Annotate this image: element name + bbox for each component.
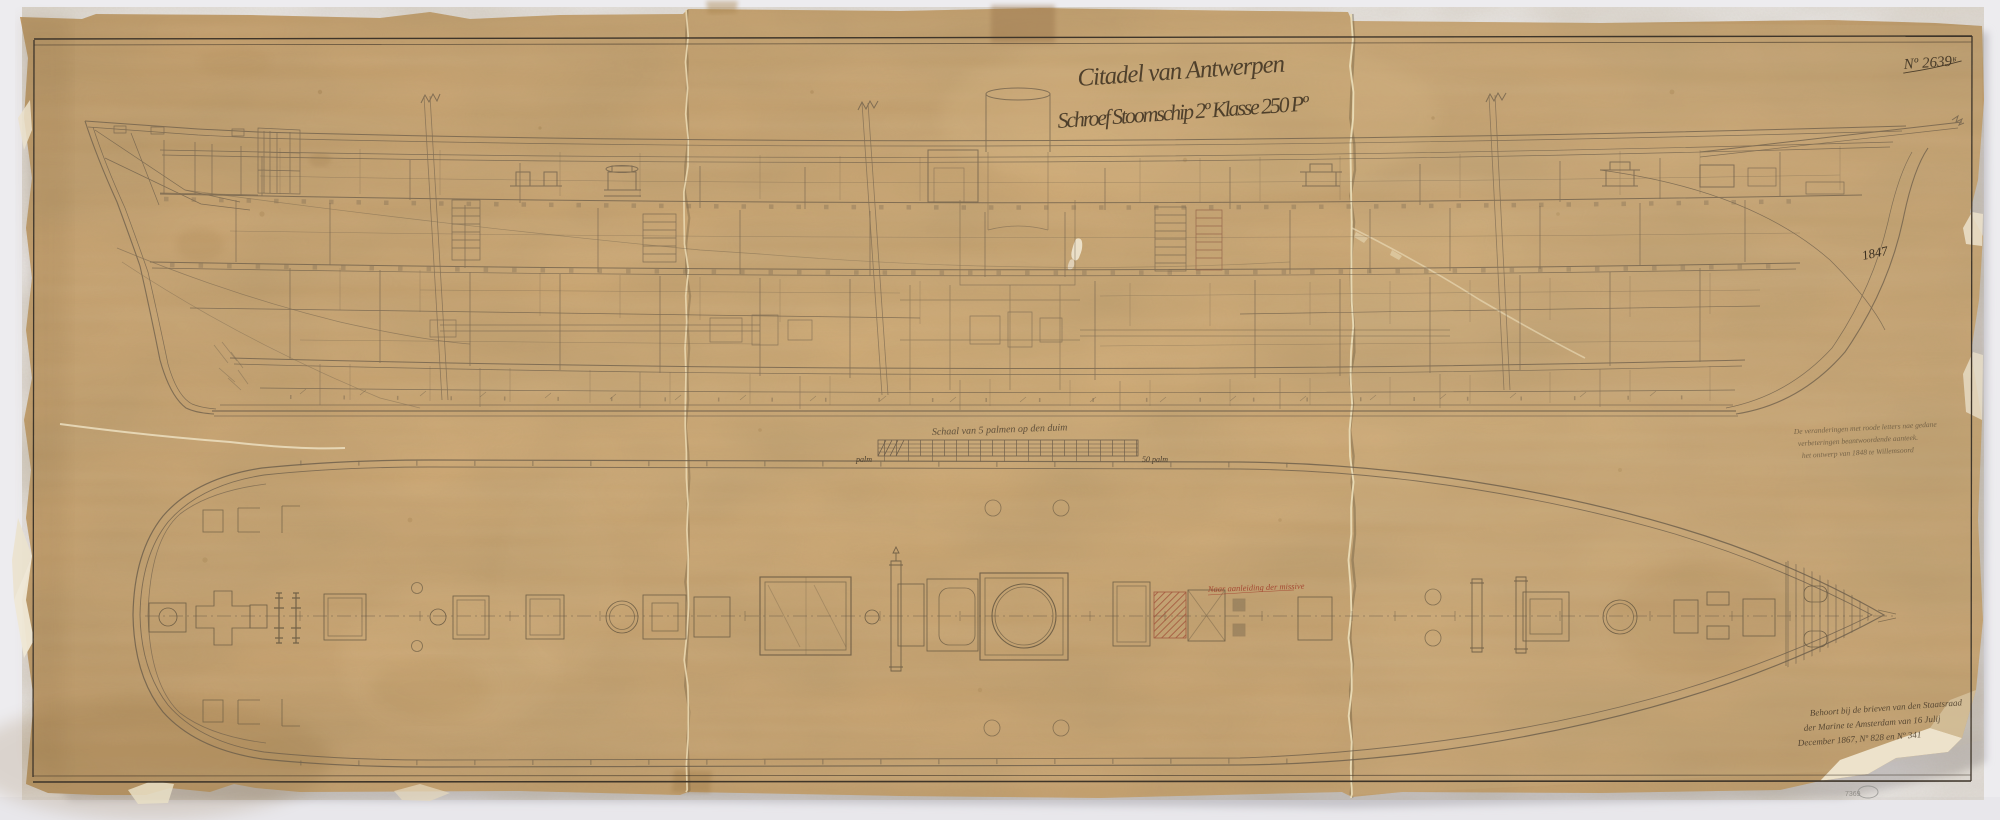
- svg-text:7369: 7369: [1845, 791, 1861, 798]
- svg-text:palm: palm: [855, 455, 872, 464]
- svg-text:50 palm: 50 palm: [1142, 455, 1168, 464]
